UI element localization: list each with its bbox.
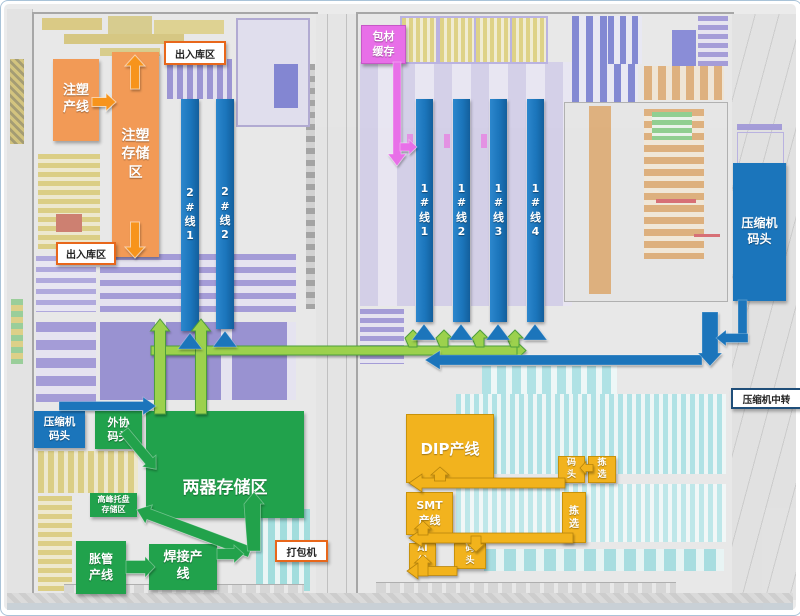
zone-dip-line: DIP产线	[406, 414, 494, 483]
blue-module	[672, 30, 696, 66]
zone-external-dock: 外协码头	[95, 411, 142, 449]
corridor-line	[327, 14, 328, 598]
line-bar-1-3-label: 1#线3	[493, 182, 505, 239]
red-cluster	[56, 214, 82, 232]
yard-area-outline	[737, 132, 784, 164]
teal-racks	[456, 484, 726, 542]
zone-ai-line: AI线	[409, 543, 436, 569]
zone-dock-lower: 码头	[454, 543, 486, 569]
line-bar-2-2-label: 2#线2	[219, 185, 231, 242]
line-bar-1-1: 1#线1	[416, 99, 433, 322]
callout-packer: 打包机	[275, 540, 328, 562]
zone-compressor-dock-right: 压缩机码头	[733, 163, 786, 301]
yellow-rack-grid	[38, 496, 72, 591]
teal-strip	[484, 549, 724, 571]
zone-tube-expansion-line: 胀管产线	[76, 541, 126, 594]
zone-compressor-dock-left: 压缩机码头	[34, 411, 85, 448]
violet-racks	[167, 59, 232, 99]
yellow-rack-grid	[38, 451, 138, 493]
khaki-block	[154, 20, 224, 34]
orange-blocks	[644, 66, 724, 100]
zone-injection-line: 注塑产线	[53, 59, 99, 141]
line-bar-1-4: 1#线4	[527, 99, 544, 322]
zone-pick-upper: 拣选	[588, 456, 616, 483]
right-yard	[732, 14, 796, 600]
bottom-road-band	[7, 603, 793, 610]
purple-rows	[360, 309, 404, 364]
yellow-rack-grid	[38, 154, 100, 249]
factory-layout-diagram: 2#线1 2#线2 1#线1 1#线2 1#线3 1#线4 注塑产线 注塑存储区…	[0, 0, 800, 616]
blue-racks	[608, 16, 642, 64]
left-edge-greenery	[11, 299, 23, 364]
callout-inout-zone-bottom: 出入库区	[56, 242, 116, 265]
line-bar-2-2: 2#线2	[216, 99, 234, 329]
red-line	[656, 199, 696, 203]
blue-module	[274, 64, 298, 108]
green-rows	[652, 112, 692, 140]
zone-smt-line: SMT产线	[406, 492, 453, 535]
tan-column	[589, 106, 611, 294]
line-bar-1-1-label: 1#线1	[419, 182, 431, 239]
pink-detail	[481, 134, 487, 148]
zone-peak-pallet-storage: 高峰托盘存储区	[90, 493, 137, 517]
line-bar-2-1-label: 2#线1	[184, 186, 196, 243]
pink-detail	[407, 134, 413, 148]
rack-cluster	[474, 16, 512, 64]
red-line	[694, 234, 720, 237]
callout-compressor-transfer: 压缩机中转	[731, 388, 800, 409]
zone-pick-lower: 拣选	[562, 492, 586, 543]
pink-detail	[444, 134, 450, 148]
line-bar-1-3: 1#线3	[490, 99, 507, 322]
callout-inout-zone-top: 出入库区	[164, 41, 226, 65]
purple-rows	[36, 322, 96, 402]
lavender-module	[236, 18, 310, 127]
line-bar-2-1: 2#线1	[181, 99, 199, 331]
bottom-hatch-band	[7, 593, 793, 603]
line-bar-1-2: 1#线2	[453, 99, 470, 322]
zone-injection-storage: 注塑存储区	[112, 52, 159, 257]
corridor	[316, 14, 356, 598]
corridor-line	[346, 14, 347, 598]
rack-cluster	[510, 16, 548, 64]
zone-packaging-buffer: 包材缓存	[361, 25, 406, 64]
yard-purple-bar	[737, 124, 782, 130]
cad-drawing-background: 2#线1 2#线2 1#线1 1#线2 1#线3 1#线4 注塑产线 注塑存储区…	[4, 4, 796, 610]
khaki-block	[108, 16, 152, 36]
khaki-block	[42, 18, 102, 30]
purple-racks	[698, 16, 728, 66]
purple-blocks	[100, 322, 296, 400]
zone-welding-line: 焊接产线	[149, 544, 217, 590]
left-edge-hatch	[10, 59, 24, 144]
line-bar-1-2-label: 1#线2	[456, 182, 468, 239]
line-bar-1-4-label: 1#线4	[530, 182, 542, 239]
rack-cluster	[438, 16, 476, 64]
zone-hx-storage: 两器存储区	[146, 411, 304, 518]
zone-dock-upper: 码头	[558, 456, 585, 483]
